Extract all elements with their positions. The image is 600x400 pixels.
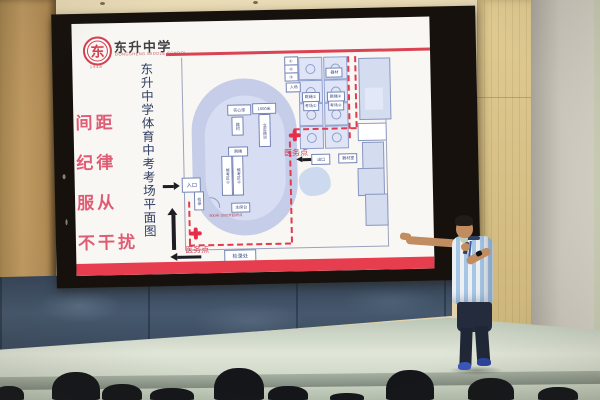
- check-box: 检录: [194, 191, 204, 210]
- building-block: [358, 122, 387, 141]
- motto-line: 间距: [75, 113, 135, 134]
- presenter: [400, 210, 512, 376]
- ceiling-mark: [100, 2, 105, 5]
- audience-head: [0, 386, 24, 400]
- audience-head: [386, 370, 434, 400]
- right-wall: [528, 0, 600, 336]
- track-note: 800米·1000米起终点: [209, 213, 242, 219]
- ceiling-mark: [253, 1, 258, 4]
- slide-vertical-title: 东升中学体育中考考场平面图: [136, 62, 159, 244]
- presenter-shoe: [477, 358, 491, 366]
- audience-head: [150, 388, 194, 400]
- route-dashed-line: [347, 56, 351, 138]
- equipment-box: 器材室: [338, 153, 357, 163]
- map-border-left: [181, 58, 186, 250]
- building-block: [362, 142, 385, 170]
- presenter-leg: [459, 328, 472, 366]
- motto-text: 间距 纪律 服从 不干扰: [75, 93, 139, 274]
- station-box: 主席台: [231, 202, 250, 212]
- court-label: 考场①: [303, 101, 319, 111]
- entry-arrow-up: [167, 208, 179, 250]
- audience-head: [468, 378, 514, 400]
- audience-head: [52, 372, 100, 400]
- map-border-bottom: [185, 245, 389, 250]
- pond: [298, 167, 331, 197]
- building-inner: [365, 88, 383, 110]
- slide: 东 1948 东升中学 DONGSHENG MIDDLE SCHOOL 间距 纪…: [71, 17, 434, 276]
- building-block: [357, 168, 385, 197]
- audience-head: [538, 387, 578, 400]
- audience-head: [102, 384, 142, 400]
- presenter-striped-jersey: [452, 236, 493, 304]
- medical-cross-icon: [289, 129, 301, 141]
- audience-head: [268, 386, 308, 400]
- medical-label: 医务点: [185, 239, 207, 257]
- entry-arrow-right: [163, 182, 180, 191]
- audience-head: [214, 368, 264, 400]
- stand-box: 入场: [286, 82, 301, 92]
- presenter-shoe: [458, 362, 471, 370]
- logo-year: 1948: [89, 64, 104, 69]
- auditorium-photo: 东 1948 东升中学 DONGSHENG MIDDLE SCHOOL 间距 纪…: [0, 0, 600, 400]
- bezel-reflection: [65, 219, 67, 225]
- route-dashed-line: [354, 56, 357, 127]
- campus-map: 器材 跳绳① 跳绳② 考场① 考场② ① ② ③ 入场: [179, 53, 395, 253]
- motto-line: 服从: [77, 193, 137, 214]
- station-box: 器材: [231, 116, 243, 135]
- school-seal-logo: 东: [83, 36, 113, 66]
- station-box: 1000米: [252, 103, 276, 115]
- basketball-court: [298, 57, 322, 80]
- medical-cross-icon: [190, 227, 202, 239]
- court-label: 考场②: [328, 100, 344, 110]
- seal-char: 东: [90, 41, 104, 61]
- floor-shadow: [448, 366, 504, 375]
- presenter-hair: [455, 215, 473, 226]
- pillar-seam: [477, 97, 531, 98]
- station-box: 立定跳远: [258, 114, 271, 147]
- station-box: 候考区②: [232, 155, 244, 195]
- court-label: 器材: [325, 67, 342, 77]
- exit-box: 出口: [311, 154, 330, 165]
- motto-line: 不干扰: [78, 233, 138, 254]
- motto-line: 纪律: [76, 153, 136, 174]
- right-wall-strip: [594, 0, 600, 336]
- building-block: [365, 193, 389, 225]
- station-box: 候考区①: [221, 156, 233, 196]
- presenter-mic-hand: [461, 243, 470, 251]
- audience-head: [330, 393, 364, 400]
- map-arrow-left: [296, 156, 311, 163]
- presenter-hand: [400, 232, 412, 240]
- presenter-leg: [475, 326, 490, 363]
- station-box: 实心球: [227, 104, 251, 116]
- bezel-reflection: [63, 174, 66, 179]
- stand-box: ③: [284, 72, 298, 81]
